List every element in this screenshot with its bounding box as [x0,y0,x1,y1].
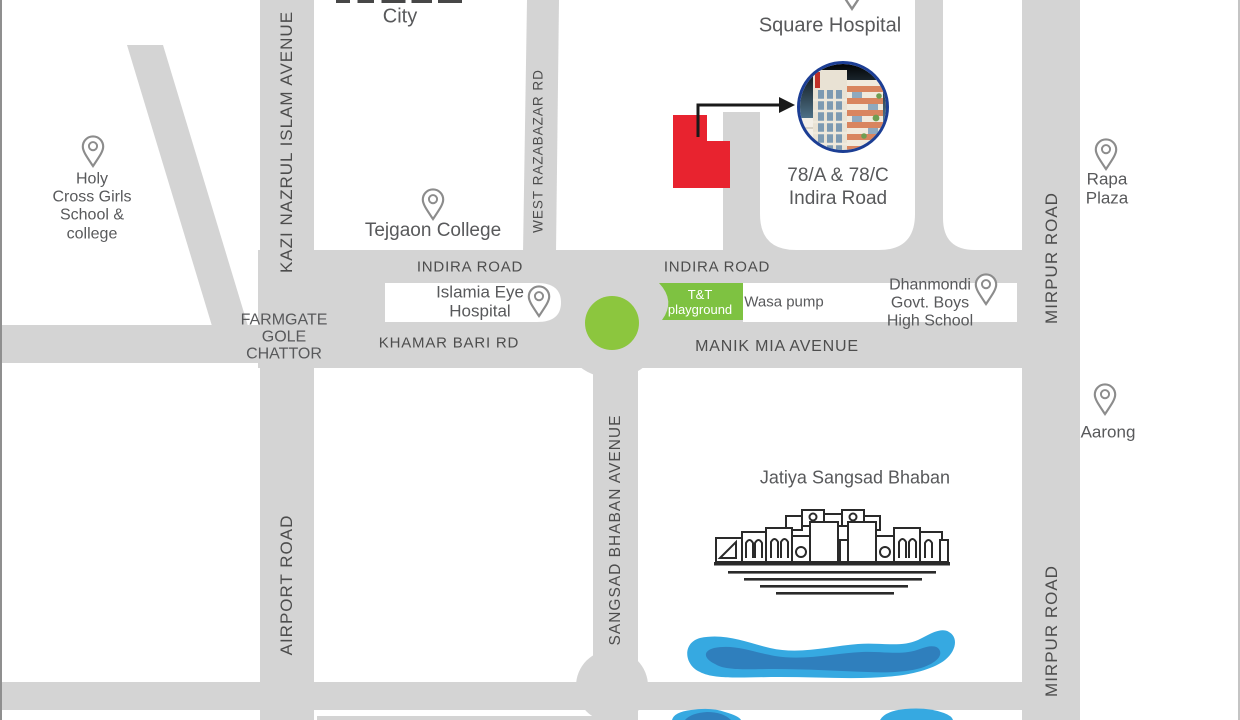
dhanmondi-label: Dhanmondi Govt. Boys High School [887,277,973,332]
location-pin-icon [973,273,999,306]
junction-bump [576,650,648,720]
road-label-mirpur-lower: MIRPUR ROAD [1042,565,1062,697]
road-label-west-razabazar: WEST RAZABAZAR RD [531,69,546,233]
road-label-khamar-bari: KHAMAR BARI RD [379,335,519,352]
road-label-kazi-nazrul: KAZI NAZRUL ISLAM AVENUE [277,11,297,273]
road-bottom-2 [317,716,593,720]
aarong-label: Aarong [1081,422,1136,441]
parliament-illustration [714,510,950,595]
road-label-indira-east: INDIRA ROAD [664,259,770,276]
property-label: 78/A & 78/C Indira Road [787,165,888,211]
map-left-border [0,0,2,720]
islamia-label: Islamia Eye Hospital [436,283,524,322]
location-pin-icon [420,188,446,221]
location-pin-icon [1092,383,1118,416]
wasa-pump-label: Wasa pump [744,293,823,310]
location-pin-icon [526,285,552,318]
road-label-airport: AIRPORT ROAD [277,515,297,656]
tnt-playground-label: T&T playground [668,288,732,318]
road-label-mirpur-upper: MIRPUR ROAD [1042,192,1062,324]
rapa-plaza-label: Rapa Plaza [1086,170,1129,209]
cutoff-text-fragment [336,0,462,3]
city-label: City [383,6,417,29]
square-hospital-label: Square Hospital [759,15,901,38]
property-footprint [673,115,730,188]
road-label-sangsad-avenue: SANGSAD BHABAN AVENUE [607,415,625,646]
tejgaon-college-label: Tejgaon College [365,220,501,242]
location-pin-icon [838,0,866,11]
holy-cross-label: Holy Cross Girls School & college [52,171,131,244]
road-label-manik-mia: MANIK MIA AVENUE [695,338,859,356]
location-pin-icon [80,135,106,168]
road-u-right [915,0,943,254]
roundabout-green [585,296,639,350]
road-farmgate-west [0,325,260,363]
location-pin-icon [1093,138,1119,171]
jatiya-sangsad-label: Jatiya Sangsad Bhaban [760,468,950,489]
location-map: City Square Hospital 78/A & 78/C Indira … [0,0,1240,720]
farmgate-label: FARMGATE GOLE CHATTOR [241,311,328,362]
road-bottom [0,682,1022,710]
road-diagonal [127,45,248,326]
road-label-indira-west: INDIRA ROAD [417,259,523,276]
